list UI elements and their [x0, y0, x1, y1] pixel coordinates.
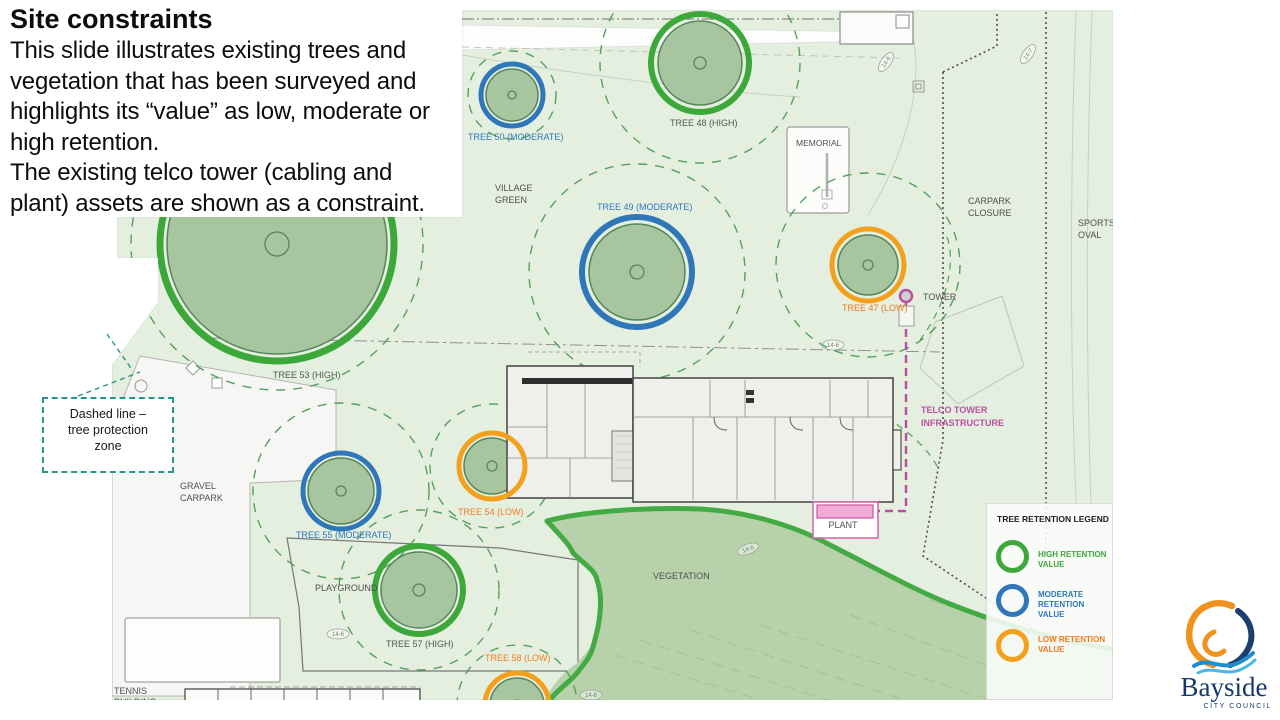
- bayside-logo: Bayside CITY COUNCIL: [1168, 594, 1280, 718]
- legend-title: TREE RETENTION LEGEND: [997, 514, 1109, 524]
- label-telco-tower: TELCO TOWER: [921, 405, 988, 415]
- tree-label: TREE 50 (MODERATE): [468, 132, 563, 142]
- label-plant: PLANT: [828, 520, 858, 530]
- label-vegetation: VEGETATION: [653, 571, 710, 581]
- label-gravel-carpark: GRAVEL: [180, 481, 216, 491]
- callout-tree-protection-zone: Dashed line – tree protection zone: [42, 397, 174, 473]
- contour-level-marker: 14-6: [580, 690, 602, 700]
- tree-retention-legend: TREE RETENTION LEGEND HIGH RETENTIONVALU…: [986, 503, 1113, 700]
- label-carpark-closure: CARPARK: [968, 196, 1011, 206]
- tree-canopy: [486, 69, 538, 121]
- tree-canopy: [838, 235, 898, 295]
- tower-marker: [900, 290, 912, 302]
- slide-body-line: The existing telco tower (cabling and: [10, 158, 466, 189]
- bayside-shell-icon: [1168, 594, 1280, 674]
- slide-body-line: highlights its “value” as low, moderate …: [10, 97, 466, 128]
- label-village-green: GREEN: [495, 195, 527, 205]
- tree-label: TREE 49 (MODERATE): [597, 202, 692, 212]
- logo-subtitle: CITY COUNCIL: [1168, 703, 1280, 710]
- slide-text-block: Site constraints This slide illustrates …: [10, 2, 466, 219]
- svg-text:14-6: 14-6: [585, 693, 598, 699]
- moderate-retention-ring-icon: [996, 584, 1029, 617]
- tree-label: TREE 47 (LOW): [842, 303, 908, 313]
- slide-body-line: vegetation that has been surveyed and: [10, 67, 466, 98]
- label-telco-tower: INFRASTRUCTURE: [921, 418, 1004, 428]
- legend-item-moderate: MODERATERETENTION VALUE: [1038, 590, 1112, 620]
- contour-level-marker: 14-6: [822, 340, 844, 350]
- label-carpark-closure: CLOSURE: [968, 208, 1012, 218]
- slide-body-line: This slide illustrates existing trees an…: [10, 36, 466, 67]
- label-tower: TOWER: [923, 292, 957, 302]
- label-sports-oval: OVAL: [1078, 230, 1101, 240]
- slide-body-line: high retention.: [10, 128, 466, 159]
- contour-level-marker: 14-6: [327, 629, 349, 639]
- low-retention-ring-icon: [996, 629, 1029, 662]
- tree-canopy: [308, 458, 374, 524]
- high-retention-ring-icon: [996, 540, 1029, 573]
- legend-item-high: HIGH RETENTIONVALUE: [1038, 550, 1106, 570]
- label-tennis-building: BUILDING: [114, 697, 157, 707]
- legend-item-low: LOW RETENTIONVALUE: [1038, 635, 1105, 655]
- svg-text:14-6: 14-6: [332, 632, 345, 638]
- tree-label: TREE 57 (HIGH): [386, 639, 454, 649]
- callout-line: zone: [44, 438, 172, 454]
- svg-text:14-6: 14-6: [827, 343, 840, 349]
- label-playground: PLAYGROUND: [315, 583, 378, 593]
- tree-canopy: [381, 552, 457, 628]
- callout-line: tree protection: [44, 422, 172, 438]
- outbuilding: [840, 12, 913, 44]
- tree-canopy: [658, 21, 742, 105]
- label-gravel-carpark: CARPARK: [180, 493, 223, 503]
- slide-body-line: plant) assets are shown as a constraint.: [10, 189, 466, 220]
- tree-label: TREE 53 (HIGH): [273, 370, 341, 380]
- tree-label: TREE 55 (MODERATE): [296, 530, 391, 540]
- logo-name: Bayside: [1168, 674, 1280, 701]
- callout-line: Dashed line –: [44, 406, 172, 422]
- tree-label: TREE 48 (HIGH): [670, 118, 738, 128]
- label-tennis-building: TENNIS: [114, 686, 147, 696]
- tree-label: TREE 54 (LOW): [458, 507, 524, 517]
- label-sports-oval: SPORTS: [1078, 218, 1115, 228]
- tree-label: TREE 58 (LOW): [485, 653, 551, 663]
- slide-body: This slide illustrates existing trees an…: [10, 36, 466, 219]
- slide: 14-614-714-614-614-614-6: [0, 0, 1280, 720]
- label-village-green: VILLAGE: [495, 183, 533, 193]
- tree-trunk: [512, 700, 522, 710]
- tree-canopy: [589, 224, 685, 320]
- label-memorial: MEMORIAL: [796, 138, 842, 148]
- slide-title: Site constraints: [10, 2, 466, 36]
